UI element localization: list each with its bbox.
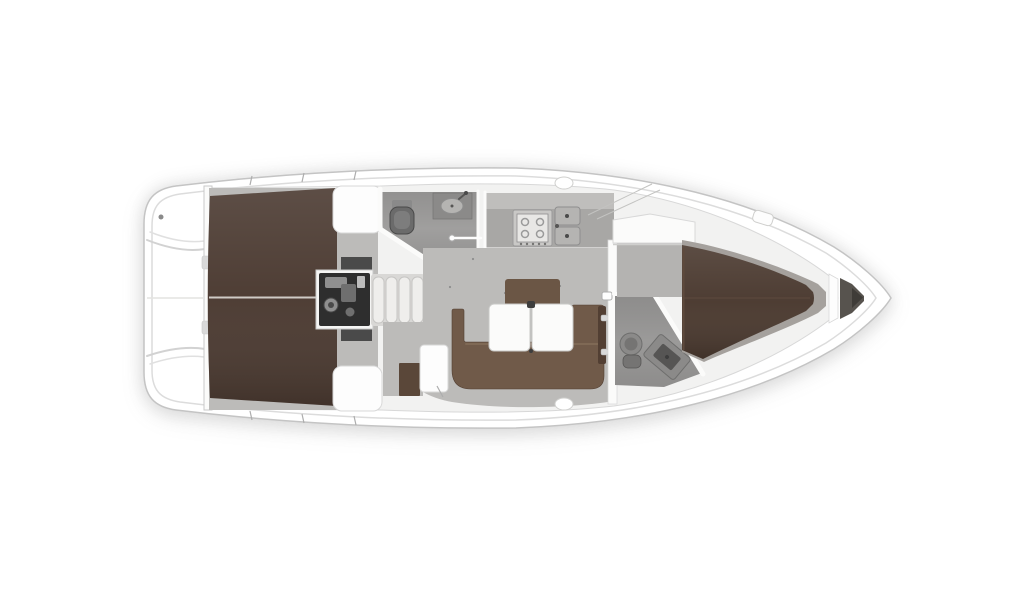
engine-compartment xyxy=(316,257,373,341)
settee-side-edge xyxy=(598,306,606,364)
salon-table-leaf-right xyxy=(532,304,573,351)
engine-part-block xyxy=(341,284,356,302)
galley xyxy=(485,192,614,252)
step-4 xyxy=(412,277,423,323)
forward-door-handle xyxy=(602,292,612,300)
companionway-steps xyxy=(371,274,425,326)
salon-locker-brown xyxy=(399,363,420,396)
stove-knob-3 xyxy=(532,243,534,245)
stove-knob-5 xyxy=(544,243,546,245)
sink-2-drain xyxy=(565,234,569,238)
forward-head-toilet-lid xyxy=(625,338,638,351)
table-hinge-bottom xyxy=(529,349,533,353)
galley-counter-back-band xyxy=(486,193,614,209)
yacht-floor-plan-page xyxy=(0,0,1024,600)
salon-cabinet-white xyxy=(420,345,448,392)
engine-part-tank xyxy=(357,276,365,288)
stove-knob-2 xyxy=(526,243,528,245)
anchor-locker-bar-1 xyxy=(829,274,838,323)
forward-cabin-floor xyxy=(617,243,684,297)
table-hinge xyxy=(527,301,535,308)
sink-1-drain xyxy=(565,214,569,218)
galley-stove-face xyxy=(517,214,548,242)
aft-cabin-port-pad xyxy=(333,186,382,233)
stern-cleat xyxy=(159,215,164,220)
yacht-floor-plan xyxy=(0,0,1024,600)
forward-head-toilet-seatback xyxy=(623,355,641,368)
chainplate-gate-top xyxy=(555,177,573,189)
aft-cabin-starboard-pad xyxy=(333,366,382,411)
settee-hinge-bottom xyxy=(601,349,608,355)
chainplate-gate-bottom xyxy=(555,398,573,410)
floor-dot-4 xyxy=(472,258,474,260)
step-2 xyxy=(386,277,397,323)
galley-faucet xyxy=(555,224,559,228)
salon-table-leaf-left xyxy=(489,304,530,351)
engine-part-filter xyxy=(346,308,355,317)
engine-part-pulley-hub xyxy=(328,302,334,308)
floor-dot-1 xyxy=(449,286,451,288)
step-3 xyxy=(399,277,410,323)
aft-head-sink-drain xyxy=(451,205,454,208)
aft-head-faucet-base xyxy=(464,191,468,195)
stove-knob-4 xyxy=(538,243,540,245)
stove-knob-1 xyxy=(520,243,522,245)
settee-hinge-top xyxy=(601,315,608,321)
step-1 xyxy=(373,277,384,323)
aft-head-toilet-lid xyxy=(394,211,410,229)
